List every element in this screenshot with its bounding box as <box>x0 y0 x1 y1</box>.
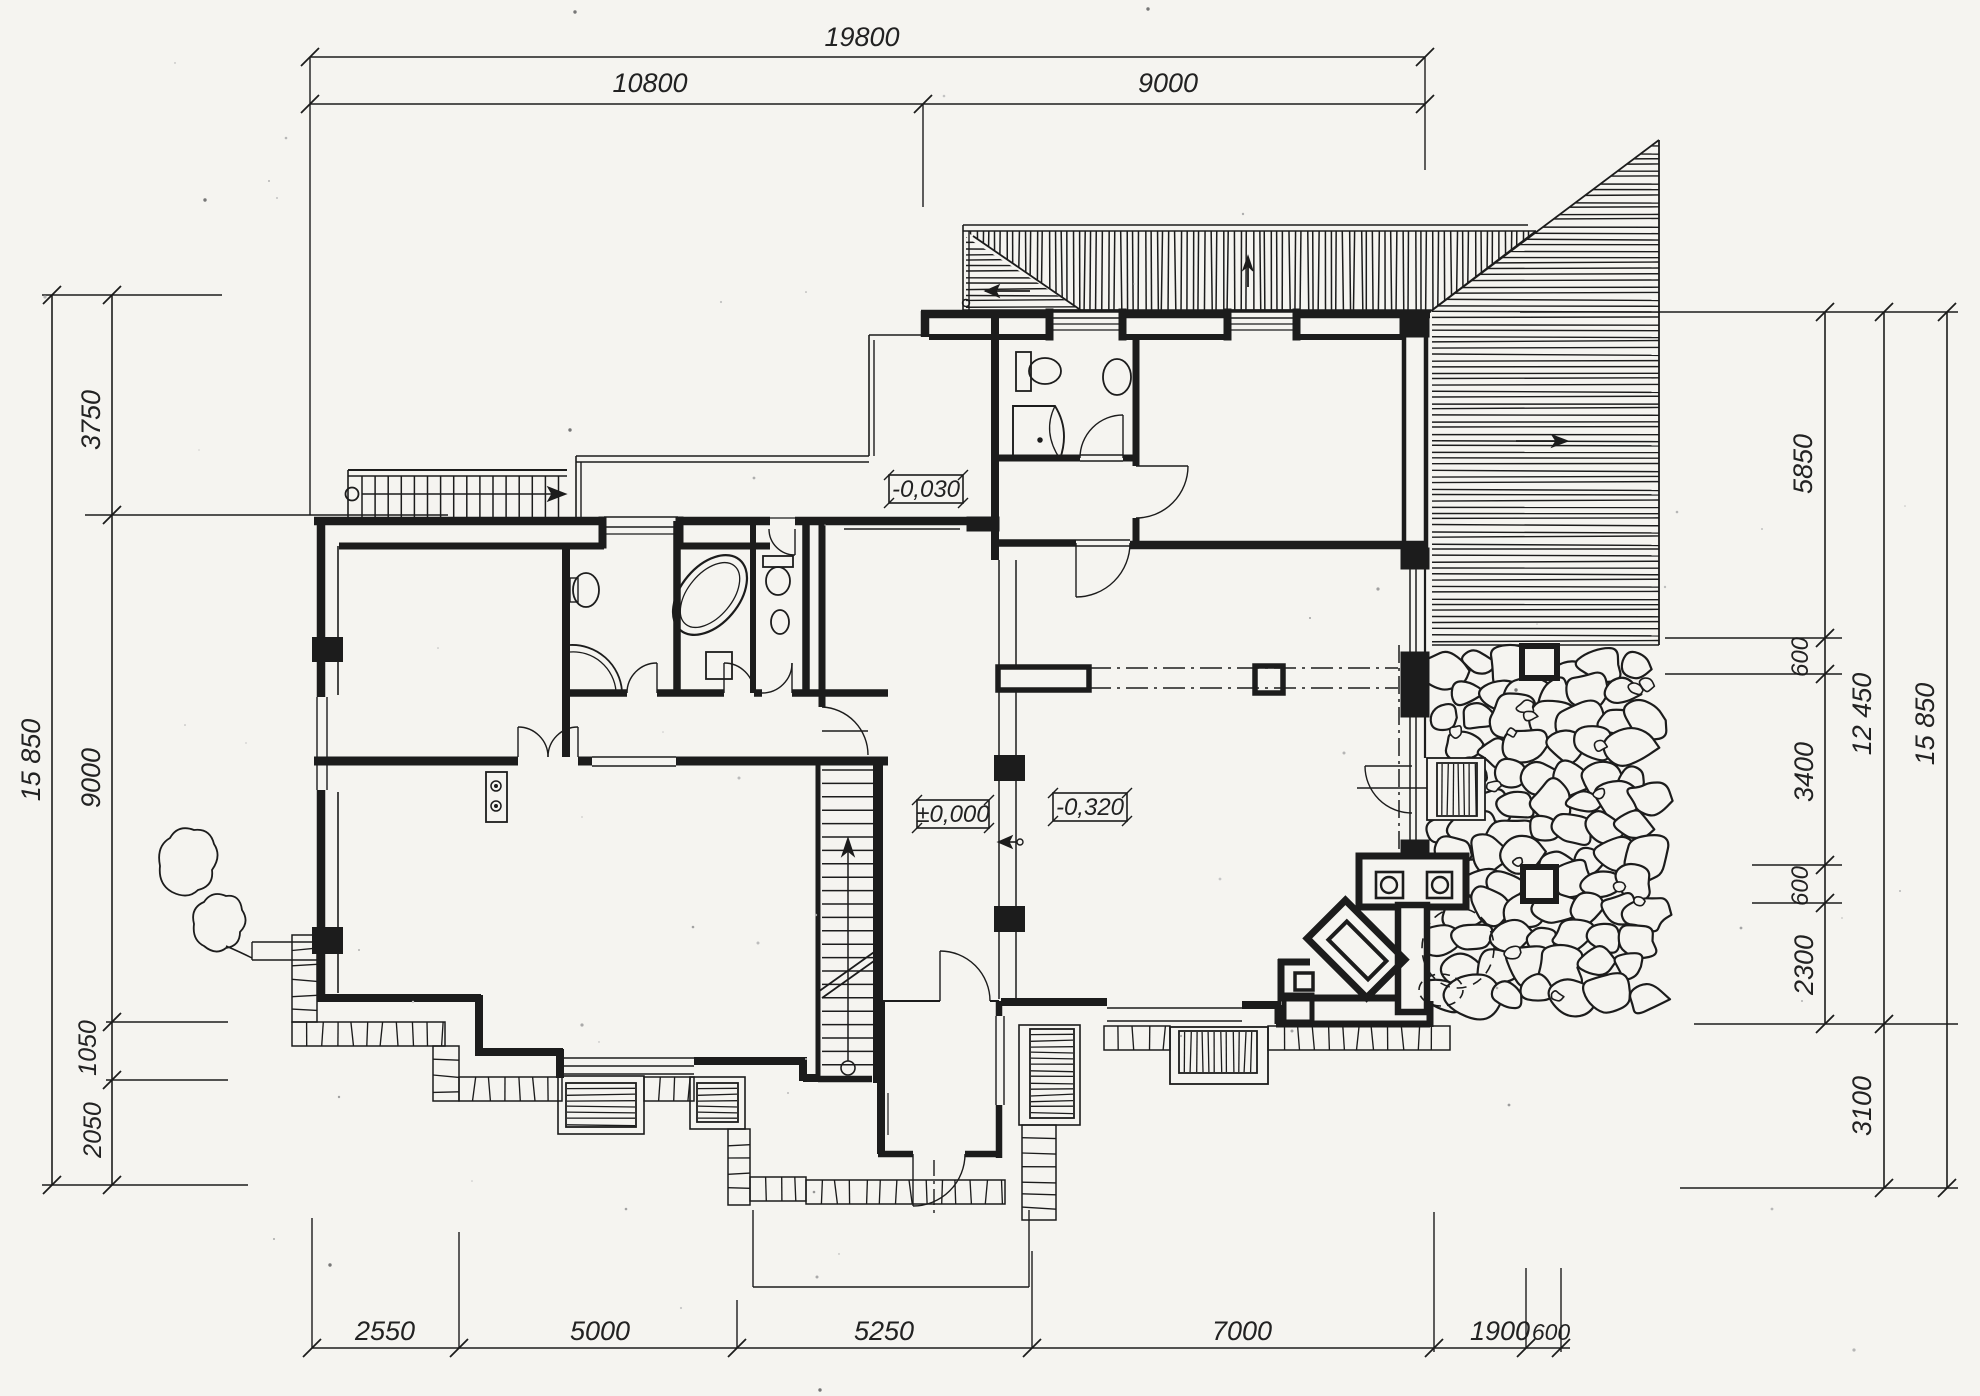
svg-text:3750: 3750 <box>76 390 106 450</box>
svg-text:10800: 10800 <box>612 68 687 98</box>
svg-text:9000: 9000 <box>1138 68 1198 98</box>
svg-text:±0,000: ±0,000 <box>916 801 990 828</box>
svg-text:2300: 2300 <box>1789 935 1819 996</box>
svg-text:600: 600 <box>1532 1319 1571 1345</box>
svg-text:5000: 5000 <box>570 1316 630 1346</box>
svg-text:1050: 1050 <box>74 1020 102 1076</box>
svg-text:7000: 7000 <box>1212 1316 1272 1346</box>
svg-text:600: 600 <box>1787 636 1814 677</box>
svg-text:15 850: 15 850 <box>16 719 46 802</box>
svg-text:19800: 19800 <box>824 22 899 52</box>
svg-text:3100: 3100 <box>1847 1076 1877 1136</box>
svg-text:9000: 9000 <box>76 748 106 808</box>
svg-text:1900: 1900 <box>1470 1316 1530 1346</box>
svg-text:600: 600 <box>1787 865 1814 906</box>
svg-text:5850: 5850 <box>1788 434 1818 494</box>
svg-text:2550: 2550 <box>354 1316 415 1346</box>
svg-text:5250: 5250 <box>854 1316 914 1346</box>
svg-text:3400: 3400 <box>1789 742 1819 802</box>
svg-text:-0,320: -0,320 <box>1056 794 1125 821</box>
svg-text:2050: 2050 <box>79 1102 107 1159</box>
svg-text:12 450: 12 450 <box>1847 673 1877 756</box>
svg-text:15 850: 15 850 <box>1910 683 1940 766</box>
svg-text:-0,030: -0,030 <box>892 476 961 503</box>
